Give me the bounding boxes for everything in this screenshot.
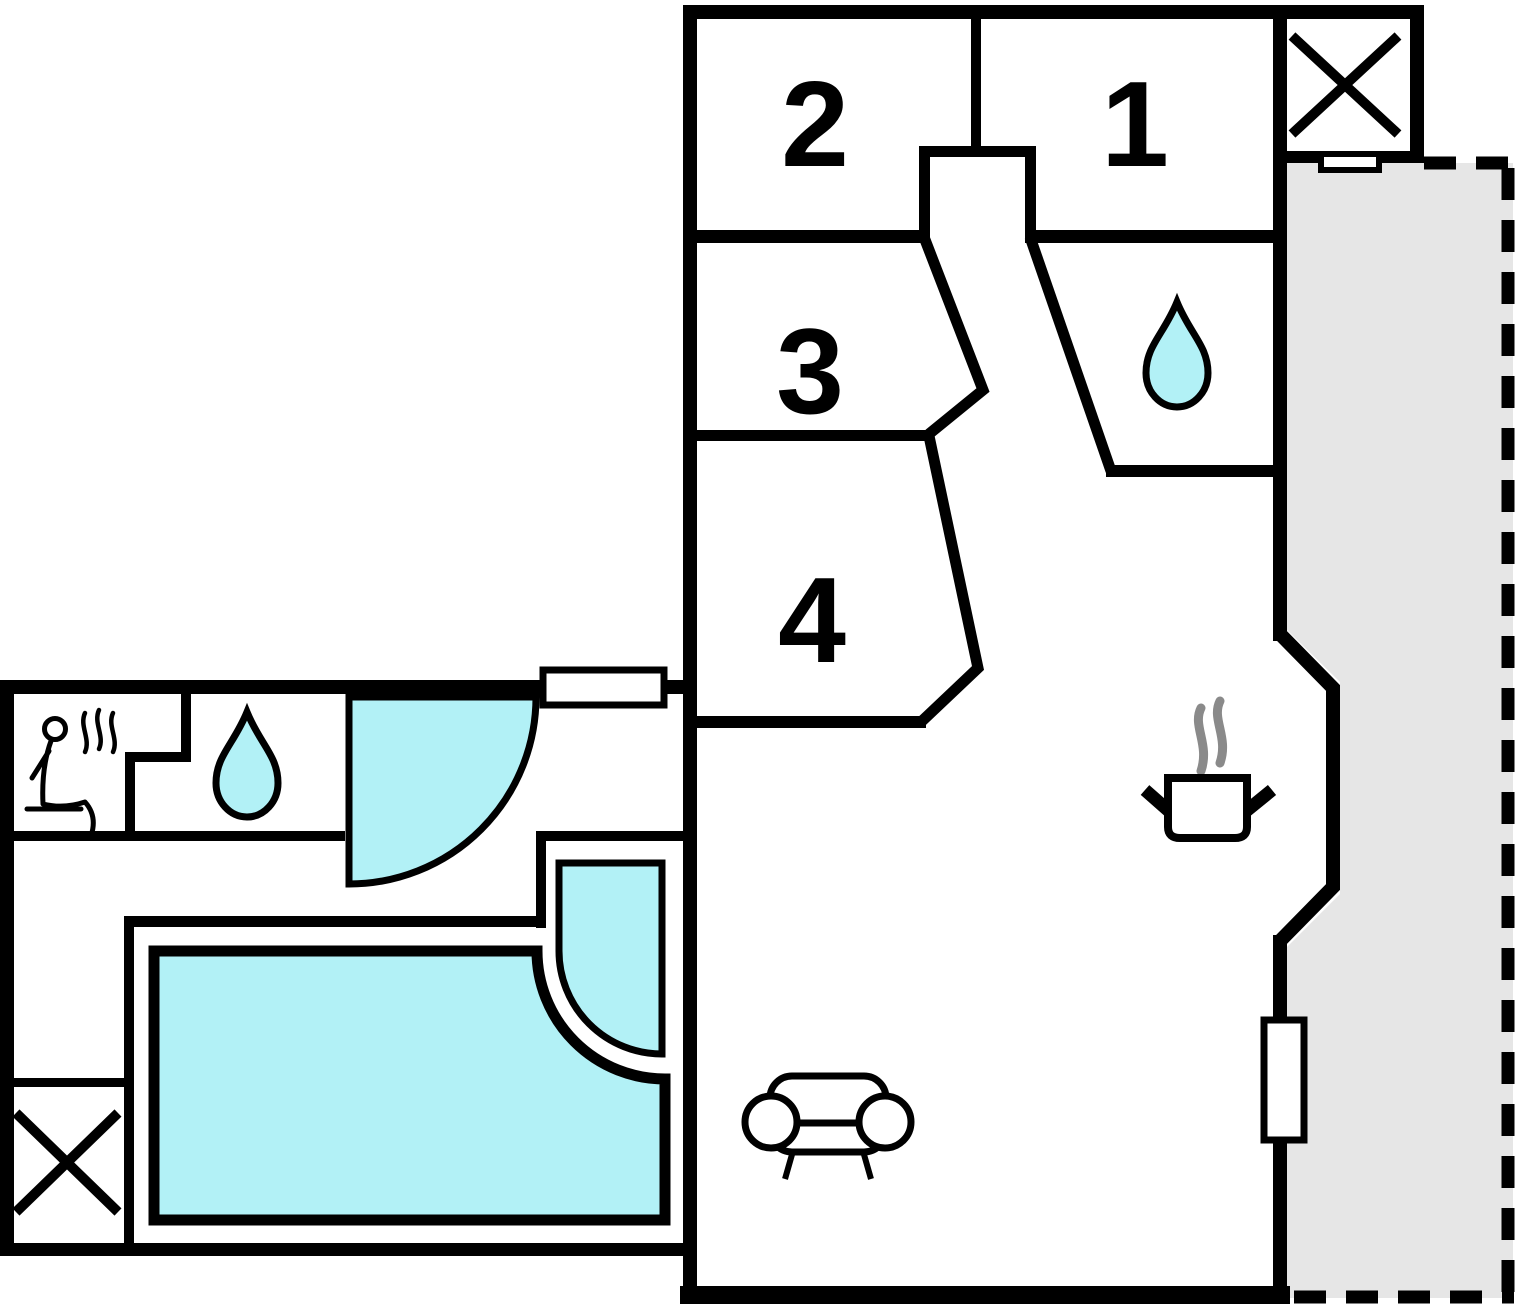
wall-segment [0, 680, 14, 1256]
wall-corridor-slant [1030, 237, 1111, 471]
wall-segment [181, 694, 191, 757]
room-2-label: 2 [781, 56, 849, 192]
wall-corridor-slant [924, 237, 983, 434]
cooking-pot-icon [1145, 701, 1272, 838]
pot-steam [1198, 701, 1222, 771]
wall-segment [1025, 230, 1287, 243]
wall-segment [0, 1243, 690, 1256]
water-drop-icon [1146, 302, 1208, 407]
wall-segment [1378, 151, 1424, 163]
wall-segment [1273, 151, 1322, 163]
wall-segment [1410, 5, 1424, 163]
room-3-label: 3 [776, 303, 844, 439]
window-annex-top [543, 670, 664, 705]
sofa-armrest [859, 1096, 911, 1148]
wall-segment [0, 831, 345, 841]
sauna-person-body [32, 741, 93, 836]
floor-plan: 2 1 3 4 [0, 0, 1519, 1304]
wall-segment [690, 716, 926, 728]
wall-corridor-slant [921, 436, 978, 722]
sofa-armrest [745, 1096, 797, 1148]
floor-plan-canvas: 2 1 3 4 [0, 0, 1519, 1304]
window-living-right [1264, 1020, 1304, 1140]
windows [543, 154, 1379, 1140]
terrace-floor [1287, 163, 1513, 1298]
room-1-label: 1 [1101, 56, 1169, 192]
door-swing-arc [349, 697, 536, 884]
window-cross-icon [1292, 36, 1398, 134]
wall-segment [0, 1078, 134, 1087]
wall-segment [125, 752, 135, 841]
wall-segment [125, 916, 542, 927]
wall-segment [919, 146, 1036, 157]
wall-segment [919, 146, 930, 241]
wall-segment [1273, 5, 1287, 641]
wall-segment [536, 831, 546, 928]
water-drop-icon [216, 712, 278, 817]
wall-segment [1106, 465, 1280, 477]
terrace-area [1287, 163, 1515, 1298]
wall-segment [536, 831, 690, 841]
sauna-steam [83, 710, 114, 752]
window-cross-icon [16, 1113, 118, 1212]
wall-segment [683, 5, 1424, 19]
shower-cabin [559, 863, 662, 1054]
wall-segment [683, 5, 697, 1304]
wall-segment [971, 19, 981, 151]
sauna-person-head [45, 719, 66, 740]
pot-body [1168, 778, 1247, 838]
wall-protrusion [1280, 634, 1333, 941]
wall-segment [1025, 146, 1036, 241]
wall-segment [690, 230, 930, 243]
wall-segment [680, 1286, 1290, 1304]
sauna-person-icon [27, 710, 115, 836]
sofa-icon [745, 1076, 911, 1179]
room-4-label: 4 [778, 552, 846, 688]
window-chimney-room [1321, 154, 1379, 170]
